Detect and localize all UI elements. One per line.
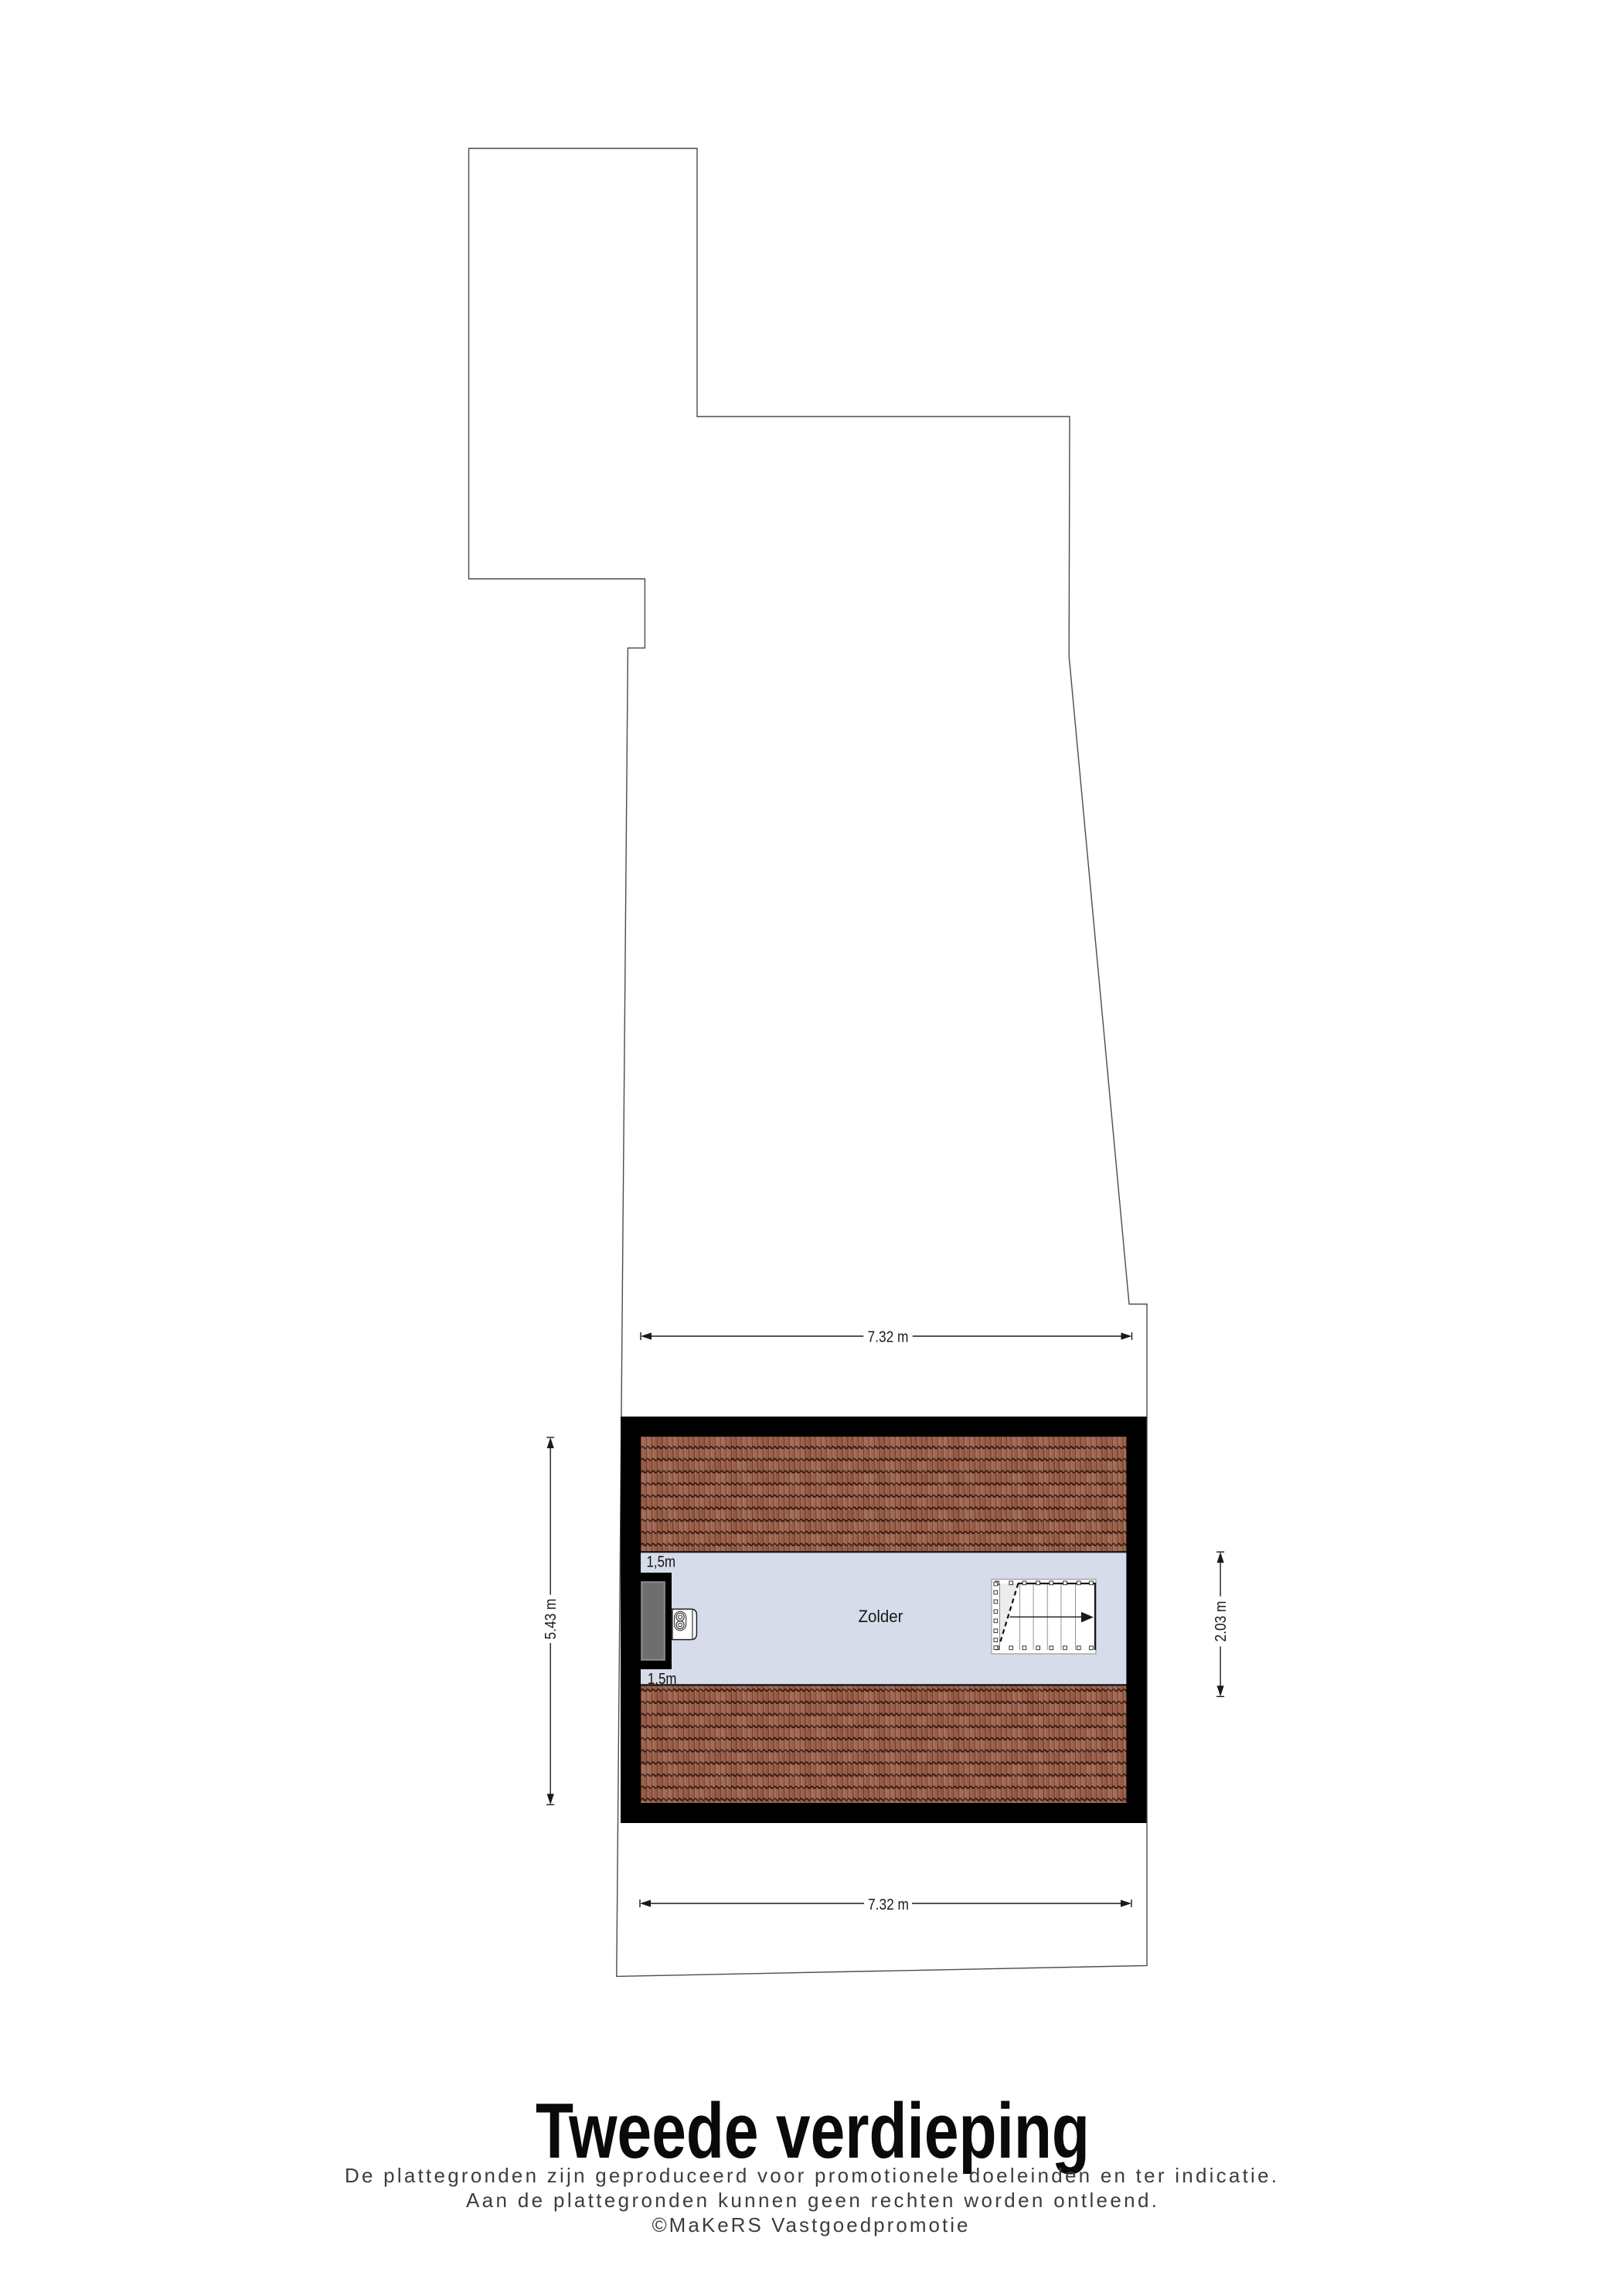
svg-text:7.32 m: 7.32 m bbox=[868, 1328, 909, 1345]
svg-text:1,5m: 1,5m bbox=[647, 1553, 676, 1570]
svg-text:De plattegronden zijn geproduc: De plattegronden zijn geproduceerd voor … bbox=[345, 2164, 1277, 2187]
svg-text:5.43 m: 5.43 m bbox=[543, 1599, 560, 1640]
svg-text:Aan de plattegronden kunnen ge: Aan de plattegronden kunnen geen rechten… bbox=[466, 2189, 1157, 2212]
svg-text:Tweede verdieping: Tweede verdieping bbox=[536, 2088, 1090, 2175]
svg-text:2.03 m: 2.03 m bbox=[1213, 1601, 1230, 1642]
svg-text:Zolder: Zolder bbox=[859, 1607, 903, 1626]
svg-text:7.32 m: 7.32 m bbox=[868, 1896, 909, 1913]
svg-text:1,5m: 1,5m bbox=[648, 1671, 677, 1688]
svg-text:©MaKeRS Vastgoedpromotie: ©MaKeRS Vastgoedpromotie bbox=[652, 2213, 968, 2236]
